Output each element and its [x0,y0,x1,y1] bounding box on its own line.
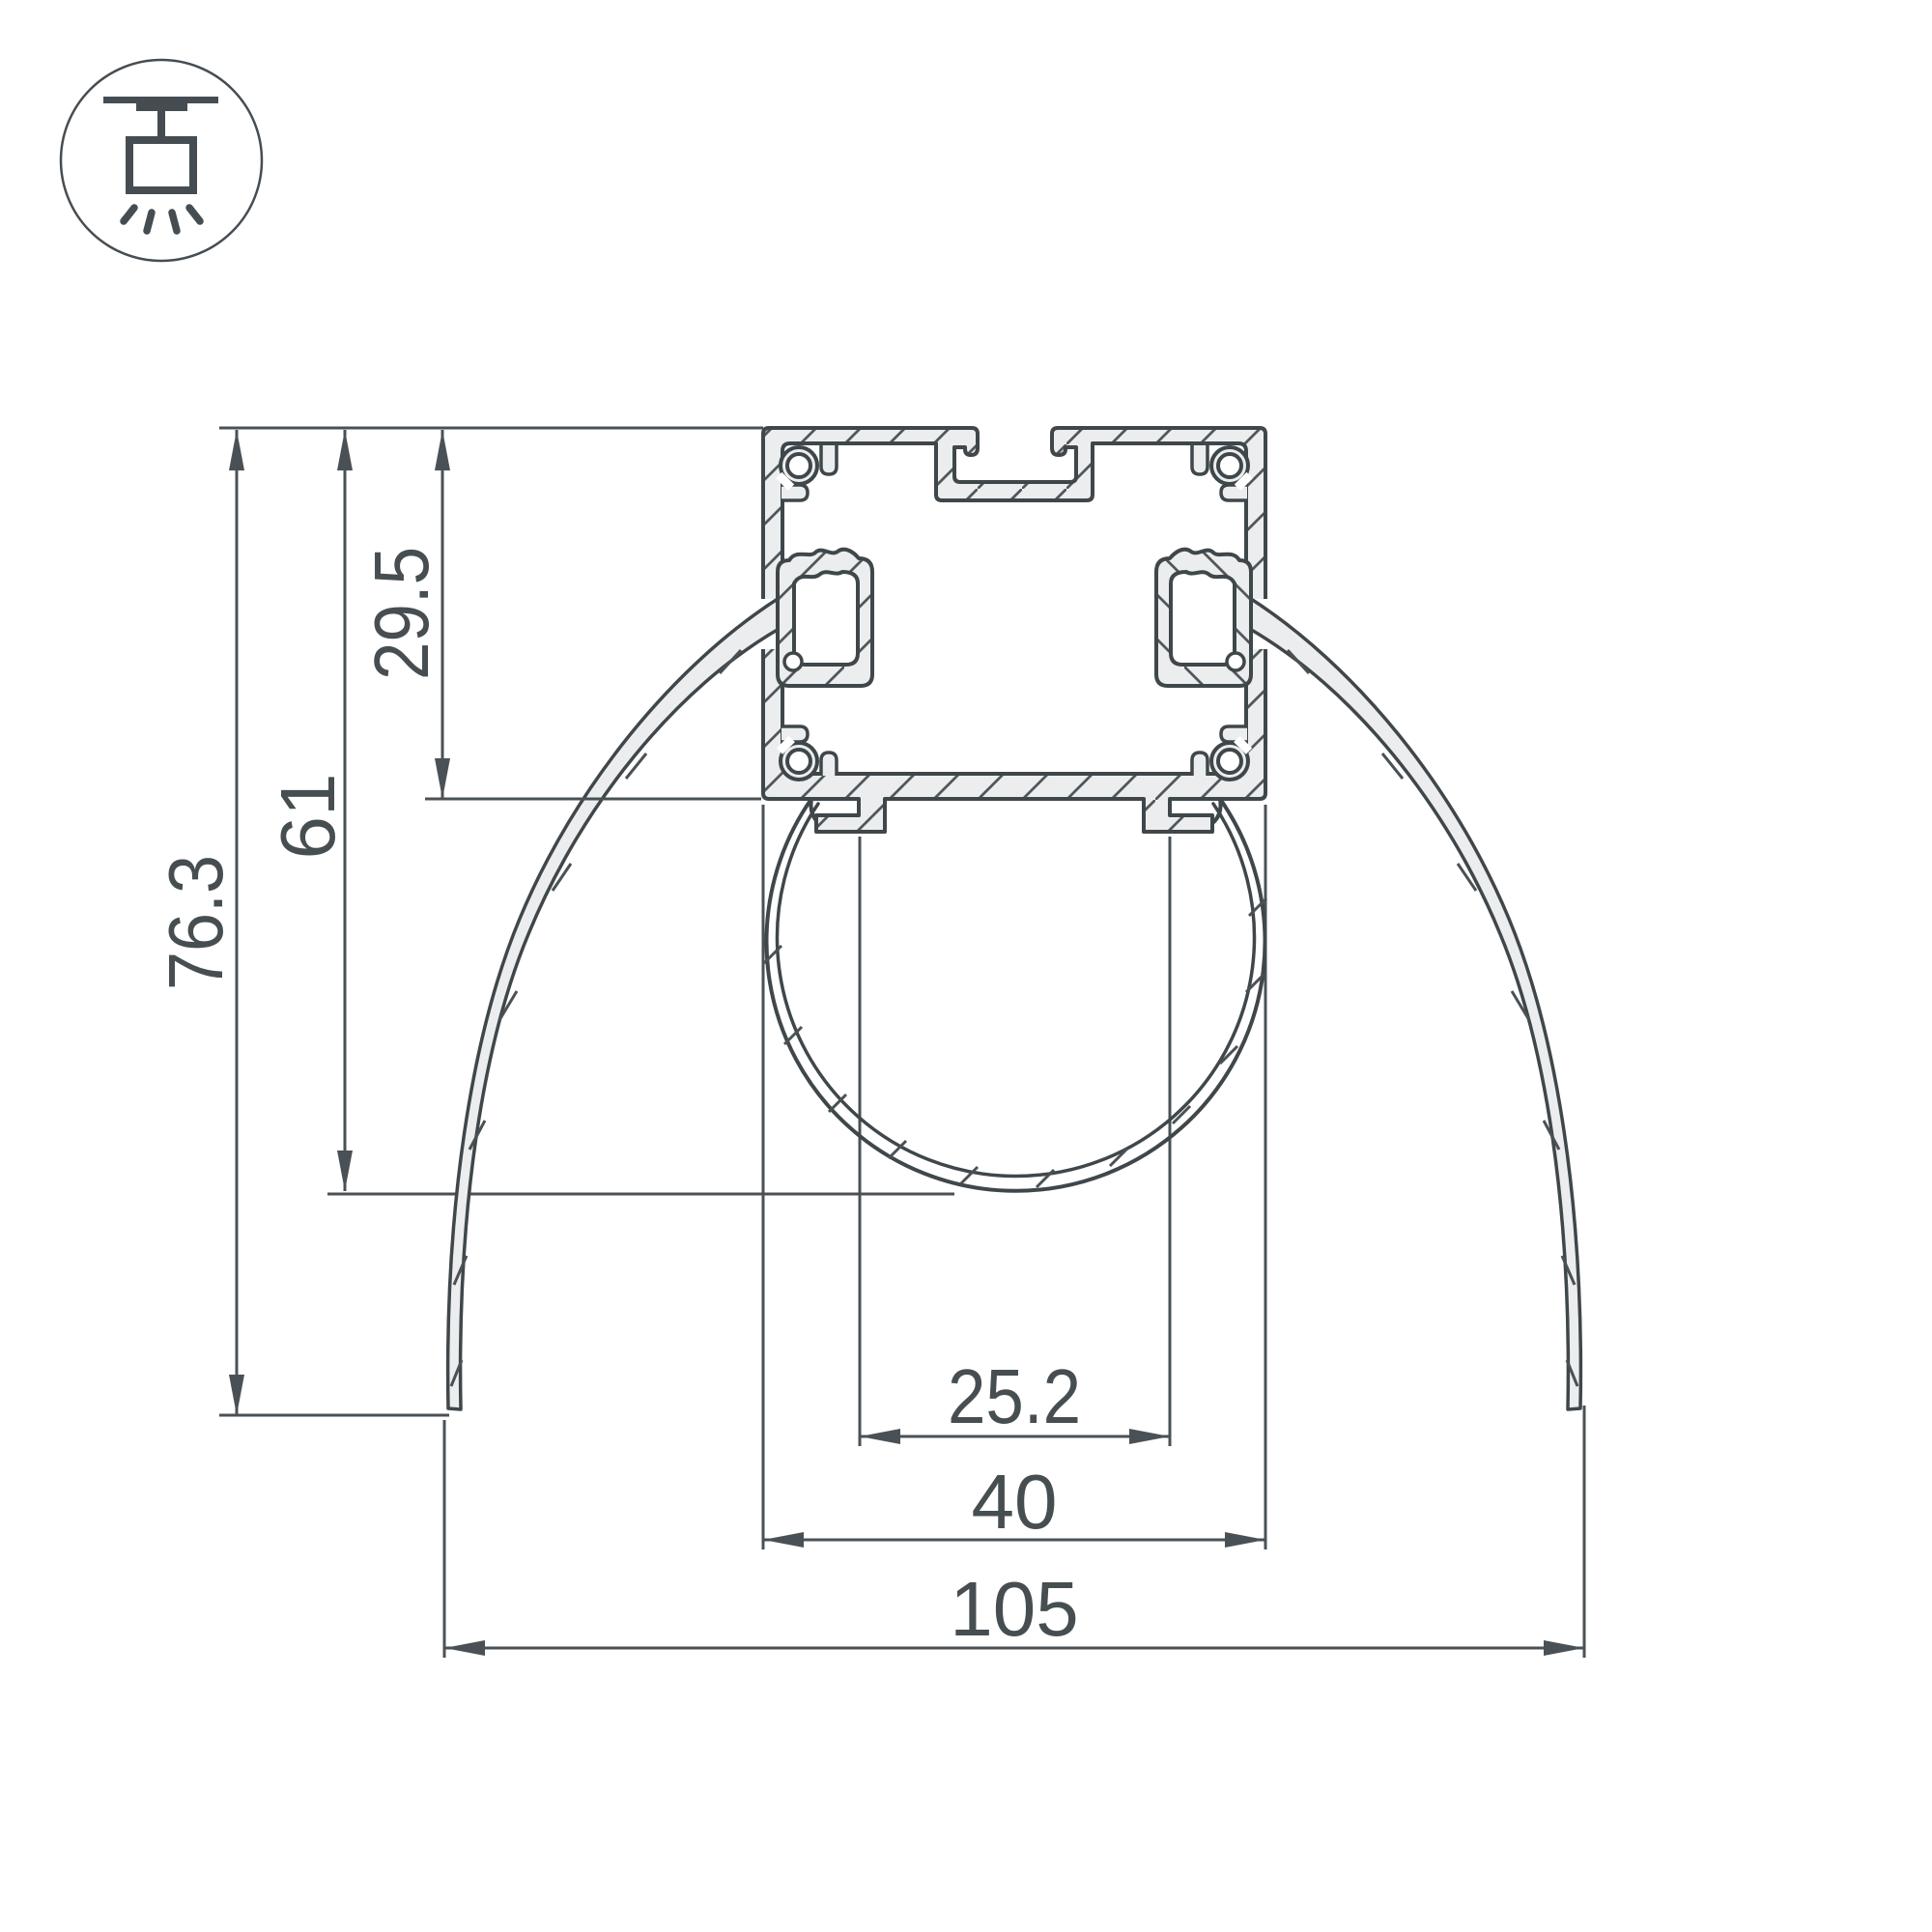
svg-text:25.2: 25.2 [948,1353,1081,1439]
svg-text:40: 40 [972,1459,1058,1545]
svg-text:61: 61 [265,774,351,860]
svg-text:105: 105 [950,1566,1078,1652]
svg-text:76.3: 76.3 [153,855,239,990]
svg-text:29.5: 29.5 [358,547,444,680]
